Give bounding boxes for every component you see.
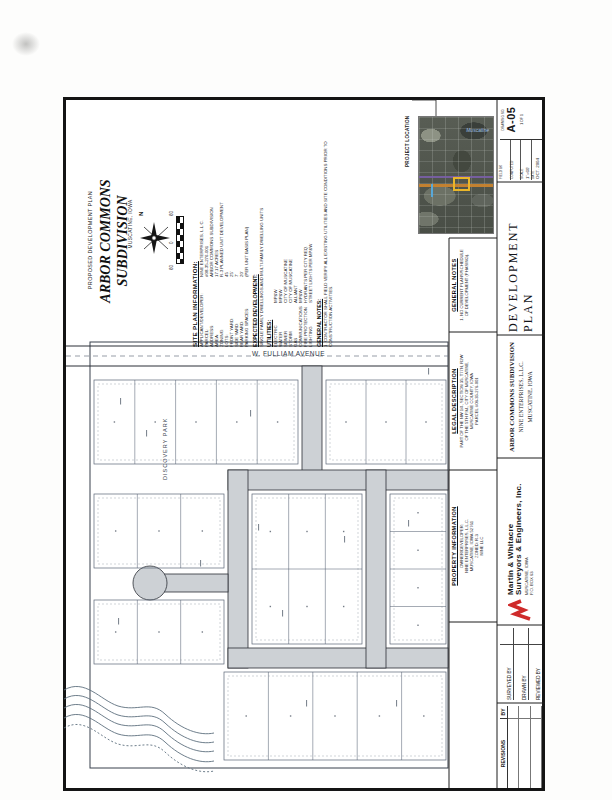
site-plan-info-section: SITE PLAN INFORMATION: APPLICANT/DEVELOP…	[192, 147, 250, 347]
street-label-fulliam: W. FULLIAM AVENUE	[252, 350, 325, 357]
park-label: DISCOVERY PARK	[162, 402, 172, 480]
scale-label-bottom: 60	[169, 260, 176, 270]
legal-description-box: LEGAL DESCRIPTION PART OF THE NW 1/4, SE…	[452, 335, 494, 467]
signoff-cell	[529, 628, 542, 645]
property-line: NINE LLC	[479, 473, 484, 619]
property-information-heading: PROPERTY INFORMATION	[452, 473, 457, 619]
drawing-no-value: A-05	[505, 107, 518, 133]
title-line-1: ARBOR COMMONS	[97, 162, 114, 320]
revision-row	[508, 706, 520, 788]
firm-name-2: Surveyors & Engineers, Inc.	[515, 483, 524, 595]
proposed-plan-label: PROPOSED DEVELOPMENT PLAN	[87, 170, 96, 310]
firm-block: Martin & Whitacre Surveyors & Engineers,…	[500, 462, 542, 622]
scale-label-mid: 0	[169, 234, 176, 244]
location-label: MUSCATINE, IOWA	[128, 196, 136, 252]
scale-label-top: 60	[169, 206, 176, 216]
field-row: DATE OCT. 2004	[532, 140, 543, 180]
map-city-label: Muscatine	[466, 127, 489, 133]
aerial-photo: Muscatine	[418, 116, 494, 234]
expected-development-heading: EXPECTED DEVELOPMENT:	[253, 147, 258, 347]
scan-smudge	[12, 32, 40, 56]
scale-bar	[176, 216, 184, 264]
note-line: CONSTRUCTION ACTIVITIES.	[328, 147, 333, 347]
legal-line: PARCEL #08-35-276-001	[474, 335, 479, 467]
note-line: SINGLE FAMILY DWELLINGS AND MULTI-FAMILY…	[259, 147, 264, 347]
site-plan-info-rows: APPLICANT/DEVELOPER: NINE ENTERPRISES, L…	[199, 147, 250, 347]
scanned-plan-page: { "title_area": { "proposed": "PROPOSED …	[0, 0, 612, 800]
sheet-no-value: 1 OF 1	[520, 114, 524, 125]
firm-logo-icon	[508, 598, 534, 622]
legal-description-heading: LEGAL DESCRIPTION	[452, 335, 457, 467]
revision-row	[519, 706, 531, 788]
note-line: 1. CONTRACTOR SHALL FIELD VERIFY ALL EXI…	[323, 147, 328, 347]
general-notes-left-heading: GENERAL NOTES:	[317, 147, 322, 347]
project-name: ARBOR COMMONS SUBDIVISION	[507, 339, 517, 455]
title-block-fields: FIELD BK COMPUTED SCALE 1"=60' DATE OCT.…	[500, 100, 542, 180]
signoff-row: SURVEYED BY	[500, 628, 514, 700]
revisions-by-header: BY	[500, 706, 507, 719]
field-row: SCALE 1"=60'	[521, 140, 532, 180]
field-row: FIELD BK	[500, 140, 511, 180]
project-owner: NINE ENTERPRISES, L.L.C.	[517, 339, 526, 455]
project-city: MUSCATINE, IOWA	[526, 339, 535, 455]
general-notes-right-box: GENERAL NOTES 1. NO CURRENT PLANS/SCHEDU…	[452, 241, 494, 329]
north-label: N	[138, 206, 146, 216]
project-location-label: PROJECT LOCATION	[405, 103, 415, 167]
utilities-heading: UTILITIES:	[267, 147, 272, 347]
note-line: OF DEVELOPMENT (PHASING).	[464, 241, 469, 329]
revisions-header: REVISIONS	[500, 719, 507, 788]
general-notes-right-heading: GENERAL NOTES	[452, 241, 457, 329]
project-title-block: ARBOR COMMONS SUBDIVISION NINE ENTERPRIS…	[500, 339, 542, 455]
general-notes-left-section: GENERAL NOTES: 1. CONTRACTOR SHALL FIELD…	[317, 147, 333, 347]
signoff-cell	[500, 628, 513, 645]
revisions-block: REVISIONS BY	[500, 706, 542, 788]
signoff-row: REVIEWED BY	[529, 628, 542, 700]
signoff-row: DRAWN BY	[514, 628, 528, 700]
info-row: PARKING SPACES: (PER UNIT BASIS PLAN)	[244, 147, 249, 347]
signoff-block: SURVEYED BY DRAWN BY REVIEWED BY	[500, 628, 542, 700]
site-plan-info-heading: SITE PLAN INFORMATION:	[192, 147, 197, 347]
photo-blue-road	[431, 184, 433, 197]
utilities-section: UTILITIES: ELECTRIC MP&W WATER MP&W SEWE…	[267, 147, 314, 347]
scale-bar-right	[180, 217, 183, 263]
revision-row	[531, 706, 543, 788]
sheet-title-block: DEVELOPMENT PLAN	[500, 186, 542, 332]
proposed-plan-text: PROPOSED DEVELOPMENT PLAN	[87, 170, 96, 310]
firm-sub-2: P.O. BOX 63	[530, 483, 535, 595]
signoff-cell	[514, 628, 527, 645]
utility-row: LIGHTING STREET LIGHTS PER MP&W	[308, 147, 313, 347]
expected-development-section: EXPECTED DEVELOPMENT: SINGLE FAMILY DWEL…	[253, 147, 264, 347]
sheet-title: DEVELOPMENT PLAN	[500, 186, 542, 332]
property-information-box: PROPERTY INFORMATION OWNER/DEVELOPER:NIN…	[452, 473, 494, 619]
info-panel: SITE PLAN INFORMATION: APPLICANT/DEVELOP…	[192, 147, 322, 347]
site-highlight-box	[453, 177, 470, 191]
